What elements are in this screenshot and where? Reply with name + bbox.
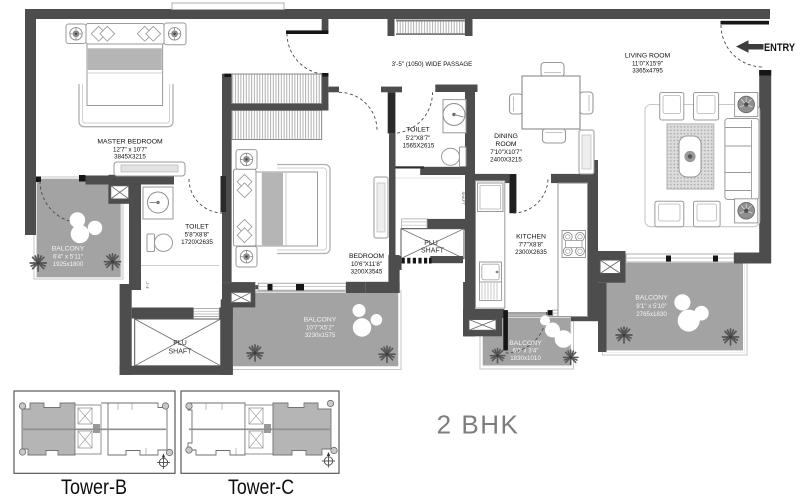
svg-text:1925x1800: 1925x1800 <box>53 261 84 268</box>
svg-text:7'7"X8'8": 7'7"X8'8" <box>519 242 544 249</box>
svg-text:6'4" x 5'11": 6'4" x 5'11" <box>53 254 83 261</box>
svg-text:1565X2615: 1565X2615 <box>403 143 435 150</box>
svg-text:2 BHK: 2 BHK <box>437 410 520 440</box>
svg-text:1830x1010: 1830x1010 <box>510 355 541 362</box>
svg-text:BALCONY: BALCONY <box>304 317 337 324</box>
svg-text:ENTRY: ENTRY <box>764 42 796 54</box>
svg-text:BALCONY: BALCONY <box>635 295 668 302</box>
svg-text:Tower-B: Tower-B <box>61 476 127 497</box>
svg-text:TOILET: TOILET <box>185 224 209 231</box>
svg-text:10'6"X11'8": 10'6"X11'8" <box>351 261 382 268</box>
svg-text:12'7" x 10'7": 12'7" x 10'7" <box>113 147 147 154</box>
svg-text:SHAFT: SHAFT <box>169 349 193 356</box>
svg-text:3365x4795: 3365x4795 <box>632 68 663 75</box>
svg-text:ROOM: ROOM <box>495 141 516 148</box>
svg-text:11'0"X15'9": 11'0"X15'9" <box>632 61 663 68</box>
svg-text:2400X3215: 2400X3215 <box>490 157 522 164</box>
svg-text:SHAFT: SHAFT <box>421 248 445 255</box>
svg-text:5'2"X8'7": 5'2"X8'7" <box>406 135 431 142</box>
svg-text:6'0' x 3'4": 6'0' x 3'4" <box>512 348 538 355</box>
svg-text:1720X2635: 1720X2635 <box>181 239 213 246</box>
svg-text:PLU: PLU <box>173 340 187 347</box>
svg-text:BALCONY: BALCONY <box>509 340 542 347</box>
svg-text:2765x1830: 2765x1830 <box>636 311 667 318</box>
svg-text:Tower-C: Tower-C <box>228 476 294 497</box>
svg-text:3'-1": 3'-1" <box>146 281 150 289</box>
svg-text:PLU: PLU <box>424 240 438 247</box>
svg-text:KITCHEN: KITCHEN <box>516 234 546 241</box>
svg-text:3'-5" (1050) WIDE PASSAGE: 3'-5" (1050) WIDE PASSAGE <box>392 61 473 68</box>
svg-text:7'10"X10'7": 7'10"X10'7" <box>490 149 522 156</box>
svg-text:TOILET: TOILET <box>406 127 430 134</box>
svg-text:9'1" x 5'10": 9'1" x 5'10" <box>636 303 667 310</box>
svg-text:LIVING ROOM: LIVING ROOM <box>625 53 671 60</box>
svg-text:3200X3545: 3200X3545 <box>351 269 383 276</box>
svg-text:BALCONY: BALCONY <box>52 246 85 253</box>
svg-text:3845X3215: 3845X3215 <box>114 154 146 161</box>
svg-text:BEDROOM: BEDROOM <box>349 253 384 260</box>
svg-text:MASTER BEDROOM: MASTER BEDROOM <box>97 139 163 146</box>
svg-text:2300X2635: 2300X2635 <box>515 249 547 256</box>
svg-text:5'8"X8'8": 5'8"X8'8" <box>185 232 210 239</box>
svg-text:10'7"X5'2": 10'7"X5'2" <box>306 325 334 332</box>
svg-text:3230x1575: 3230x1575 <box>305 332 336 339</box>
svg-text:DINING: DINING <box>494 133 518 140</box>
svg-text:SHAFT: SHAFT <box>461 191 466 205</box>
